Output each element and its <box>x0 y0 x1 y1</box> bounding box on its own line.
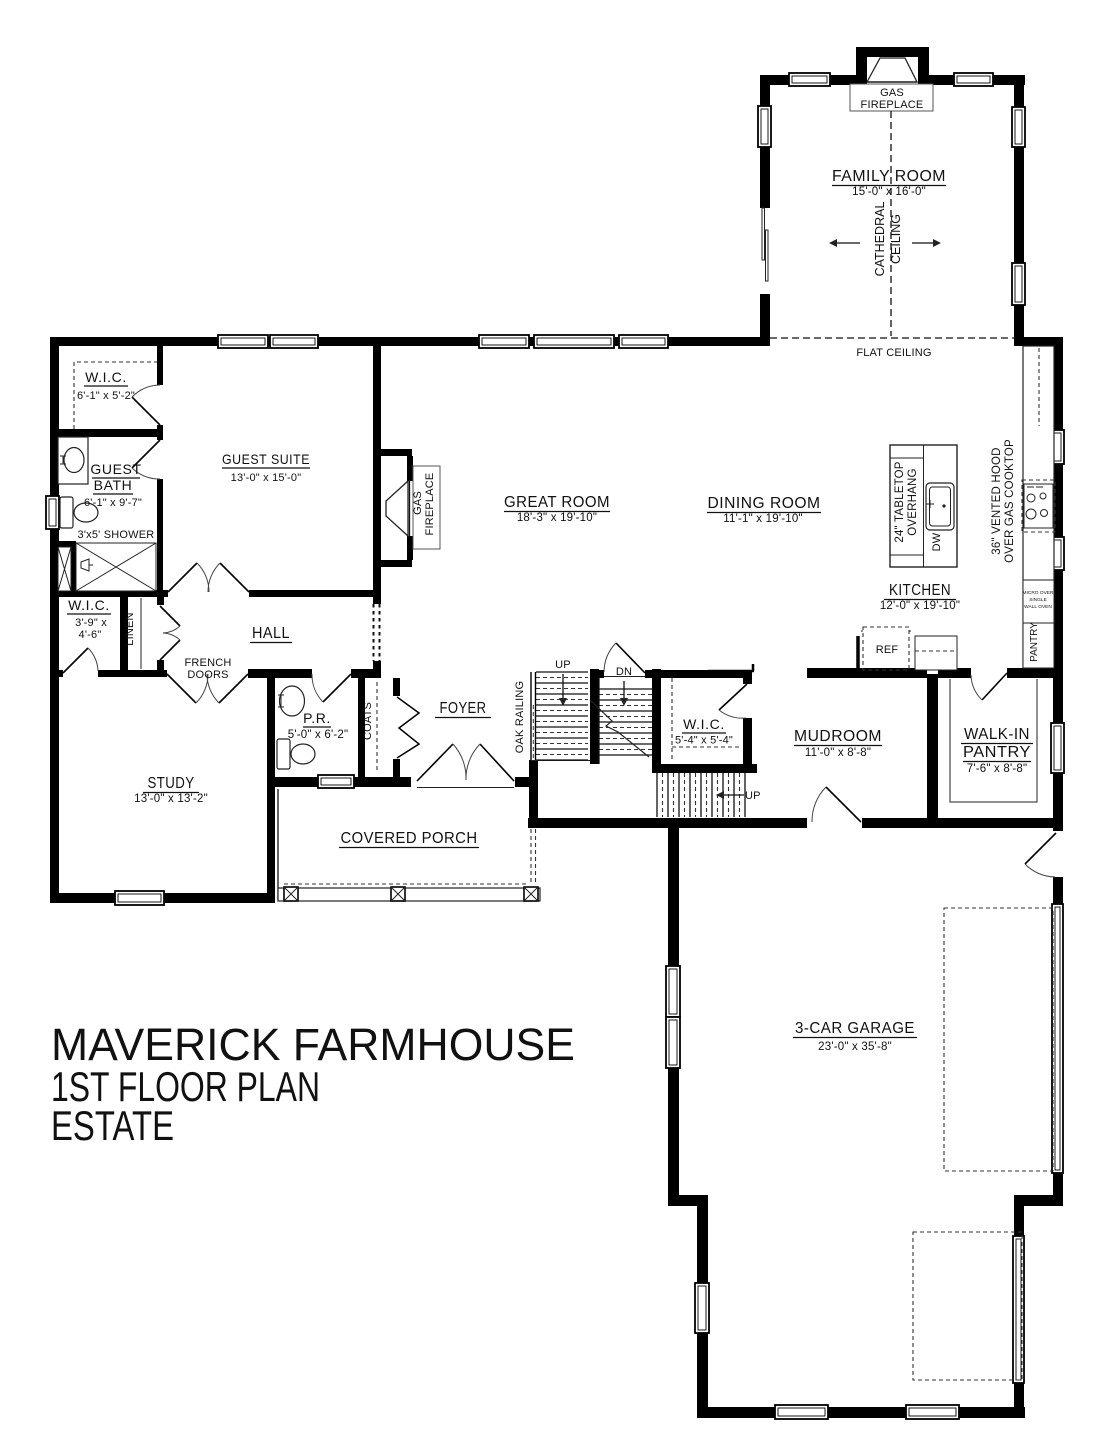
svg-text:23'-0" x 35'-8": 23'-0" x 35'-8" <box>818 1041 892 1053</box>
svg-text:6'-1" x 5'-2": 6'-1" x 5'-2" <box>77 390 135 402</box>
svg-text:PANTRY: PANTRY <box>1029 622 1040 662</box>
svg-text:5'-0" x 6'-2": 5'-0" x 6'-2" <box>288 729 349 741</box>
svg-text:12'-0" x 19'-10": 12'-0" x 19'-10" <box>880 600 960 612</box>
svg-text:GAS: GAS <box>412 491 424 515</box>
svg-text:REF: REF <box>876 644 899 656</box>
svg-text:FRENCH: FRENCH <box>184 657 231 669</box>
svg-text:3-CAR GARAGE: 3-CAR GARAGE <box>795 1020 915 1037</box>
svg-text:MUDROOM: MUDROOM <box>794 728 882 745</box>
svg-text:OVER GAS COOKTOP: OVER GAS COOKTOP <box>1004 439 1016 563</box>
svg-text:7'-6" x 8'-8": 7'-6" x 8'-8" <box>967 763 1028 775</box>
svg-text:COVERED PORCH: COVERED PORCH <box>341 830 478 847</box>
svg-text:GAS: GAS <box>880 87 904 99</box>
svg-text:UP: UP <box>745 790 761 802</box>
svg-text:COATS: COATS <box>362 702 374 740</box>
svg-text:ESTATE: ESTATE <box>51 1102 174 1149</box>
svg-text:DOORS: DOORS <box>187 669 228 681</box>
svg-text:KITCHEN: KITCHEN <box>889 582 951 599</box>
svg-text:OAK RAILING: OAK RAILING <box>514 681 526 754</box>
svg-text:6'-1" x 9'-7": 6'-1" x 9'-7" <box>84 497 142 509</box>
svg-text:13'-0" x 15'-0": 13'-0" x 15'-0" <box>231 472 302 484</box>
svg-text:11'-1" x 19'-10": 11'-1" x 19'-10" <box>723 513 802 525</box>
svg-text:OVERHANG: OVERHANG <box>907 468 919 535</box>
svg-text:11'-0" x 8'-8": 11'-0" x 8'-8" <box>805 747 871 759</box>
svg-text:24" TABLETOP: 24" TABLETOP <box>894 461 906 542</box>
svg-text:36" VENTED HOOD: 36" VENTED HOOD <box>991 447 1003 554</box>
svg-text:W.I.C.: W.I.C. <box>85 369 127 385</box>
svg-text:CEILING: CEILING <box>889 214 903 264</box>
svg-text:DW: DW <box>931 532 943 551</box>
svg-text:GUEST: GUEST <box>90 461 141 477</box>
svg-text:FLAT CEILING: FLAT CEILING <box>856 347 931 359</box>
svg-text:W.I.C.: W.I.C. <box>68 597 110 613</box>
svg-text:HALL: HALL <box>252 625 290 642</box>
svg-text:MICRO OVER: MICRO OVER <box>1023 590 1054 596</box>
svg-text:FOYER: FOYER <box>440 700 487 717</box>
svg-text:P.R.: P.R. <box>303 710 331 726</box>
svg-text:15'-0" x 16'-0": 15'-0" x 16'-0" <box>852 186 926 198</box>
svg-text:LINEN: LINEN <box>124 612 136 645</box>
svg-text:GREAT ROOM: GREAT ROOM <box>504 494 610 511</box>
svg-text:BATH: BATH <box>94 477 133 493</box>
svg-text:FAMILY ROOM: FAMILY ROOM <box>832 168 946 185</box>
svg-text:SINGLE: SINGLE <box>1029 597 1047 603</box>
svg-text:DN: DN <box>616 666 632 678</box>
svg-text:STUDY: STUDY <box>148 775 195 792</box>
svg-text:FIREPLACE: FIREPLACE <box>861 99 924 111</box>
svg-text:UP: UP <box>555 659 571 671</box>
svg-text:3'-9" x: 3'-9" x <box>75 617 107 629</box>
svg-text:18'-3" x 19'-10": 18'-3" x 19'-10" <box>517 512 597 524</box>
svg-text:CATHEDRAL: CATHEDRAL <box>873 202 887 277</box>
svg-text:GUEST SUITE: GUEST SUITE <box>222 451 310 467</box>
svg-text:FIREPLACE: FIREPLACE <box>424 473 436 536</box>
svg-text:WALL OVEN: WALL OVEN <box>1024 604 1052 610</box>
svg-text:4'-6": 4'-6" <box>79 629 102 641</box>
svg-text:W.I.C.: W.I.C. <box>683 716 725 732</box>
svg-text:DINING ROOM: DINING ROOM <box>708 495 821 512</box>
svg-text:3'x5' SHOWER: 3'x5' SHOWER <box>78 529 155 541</box>
svg-text:PANTRY: PANTRY <box>963 744 1031 761</box>
svg-text:5'-4" x 5'-4": 5'-4" x 5'-4" <box>675 735 733 747</box>
svg-text:13'-0" x 13'-2": 13'-0" x 13'-2" <box>134 793 208 805</box>
svg-text:WALK-IN: WALK-IN <box>964 726 1030 743</box>
